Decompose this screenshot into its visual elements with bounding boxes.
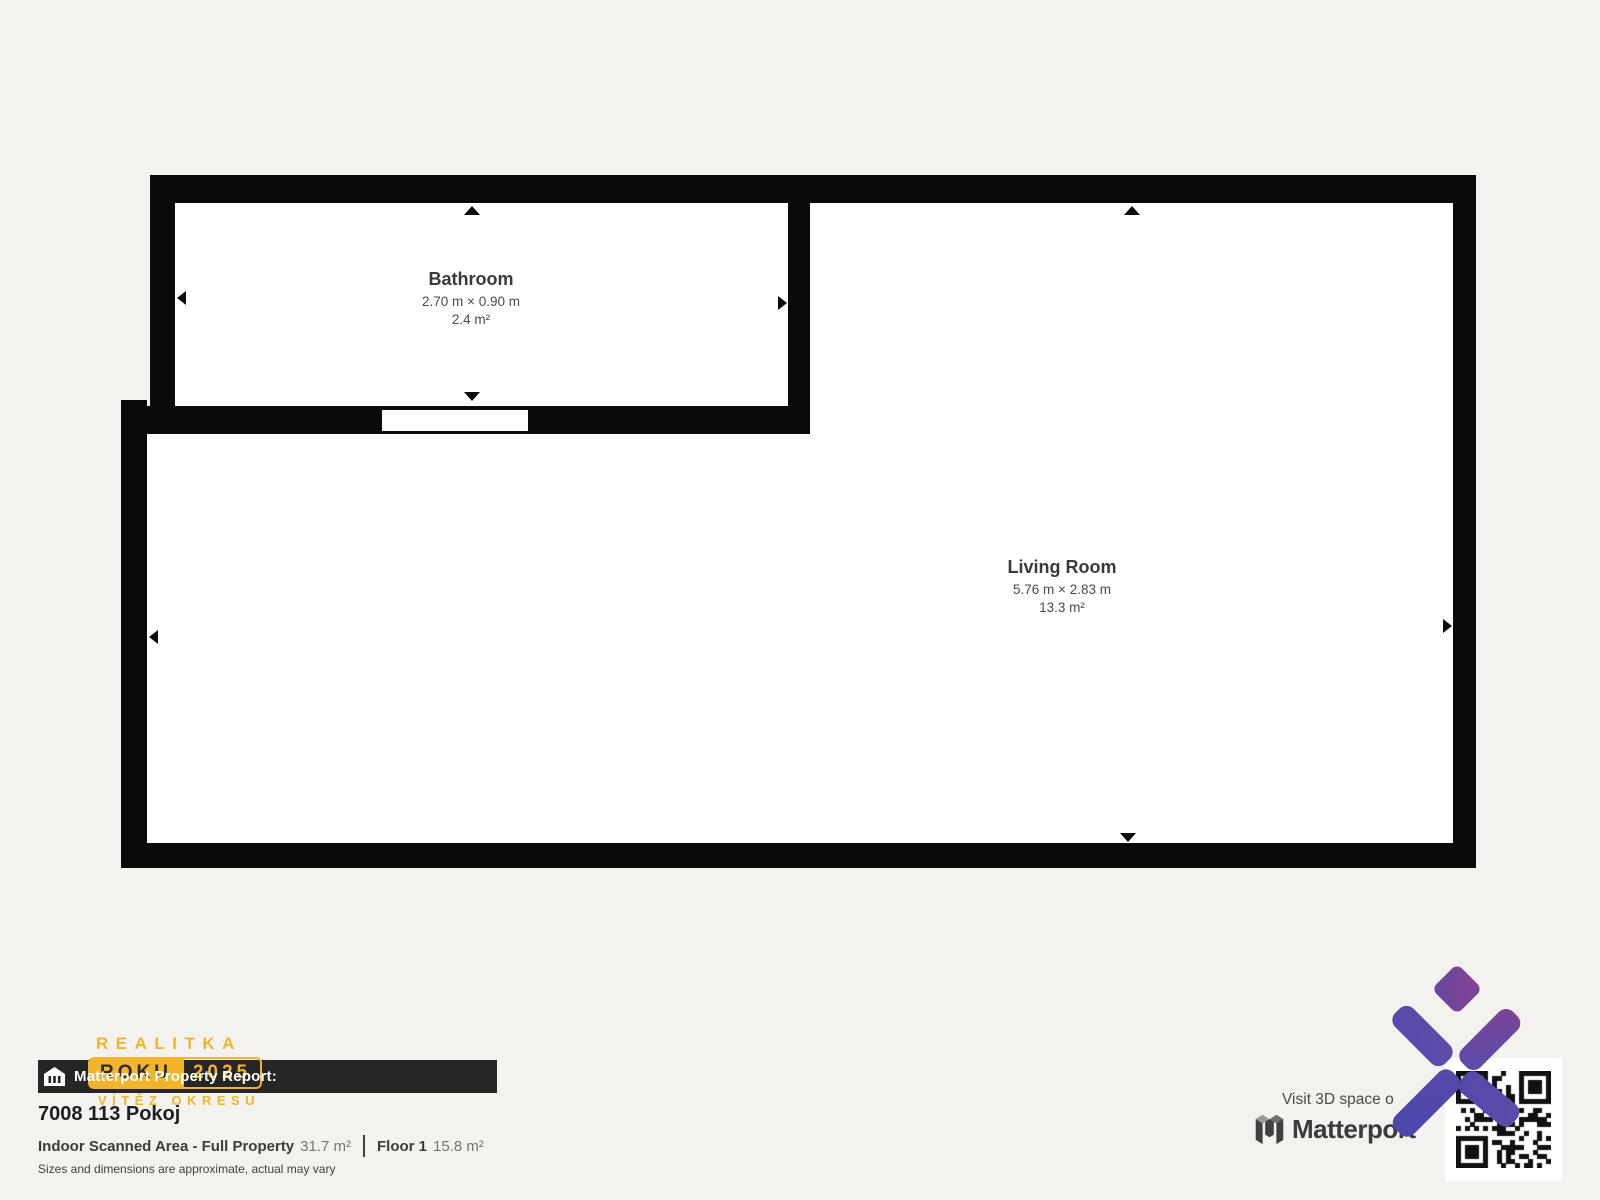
room-dimensions: 5.76 m × 2.83 m [912,581,1212,599]
area-summary: Indoor Scanned Area - Full Property 31.7… [38,1135,484,1157]
agency-logo-line1: REALITKA [88,1034,278,1054]
bathroom-arrow-right-icon [778,296,787,310]
logomark-diamond [1432,965,1483,1014]
summary-divider [363,1135,365,1157]
matterport-m-icon [1254,1112,1285,1147]
living-room-arrow-right-icon [1443,619,1452,633]
wall-bathroom-right [788,203,810,434]
bathroom-arrow-left-icon [177,291,186,305]
wall-right [1453,175,1476,868]
living-room-arrow-down-icon [1120,833,1136,842]
wall-top [150,175,1476,203]
report-bar-content: Matterport Property Report: [44,1060,277,1093]
bathroom-label: Bathroom 2.70 m × 0.90 m 2.4 m² [321,268,621,329]
scanned-area-value: 31.7 m² [300,1138,351,1155]
wall-left-lower [121,400,147,868]
visit-3d-space-text: Visit 3D space o [1282,1091,1394,1109]
scanned-area-label: Indoor Scanned Area - Full Property [38,1138,294,1155]
wall-left-upper [150,175,175,434]
building-icon [44,1067,65,1086]
living-room-arrow-up-icon [1124,206,1140,215]
room-dimensions: 2.70 m × 0.90 m [321,293,621,311]
matterport-property-report-page: { "page": { "background": "#f4f2ef" }, "… [0,0,1600,1200]
door-opening [382,410,528,431]
bathroom-arrow-down-icon [464,392,480,401]
agency-x-logomark [1385,965,1525,1145]
floor-area-value: 15.8 m² [433,1138,484,1155]
property-title: 7008 113 Pokoj [38,1103,180,1126]
logomark-arm-lower-right [1455,1067,1524,1131]
room-name: Bathroom [321,268,621,290]
living-room-arrow-left-icon [149,630,158,644]
logomark-arm-upper-left [1388,1002,1457,1071]
living-room-label: Living Room 5.76 m × 2.83 m 13.3 m² [912,556,1212,617]
living-room-floor-upper [810,203,1453,434]
bathroom-arrow-up-icon [464,206,480,215]
room-area: 13.3 m² [912,599,1212,617]
room-name: Living Room [912,556,1212,578]
living-room-floor-main [147,434,1453,843]
room-area: 2.4 m² [321,311,621,329]
report-bar-label: Matterport Property Report: [74,1068,277,1085]
logomark-arm-lower-left [1389,1065,1465,1141]
disclaimer-text: Sizes and dimensions are approximate, ac… [38,1162,335,1176]
wall-bottom [121,843,1476,868]
floor-label: Floor 1 [377,1138,427,1155]
logomark-arm-upper-right [1455,1005,1524,1074]
